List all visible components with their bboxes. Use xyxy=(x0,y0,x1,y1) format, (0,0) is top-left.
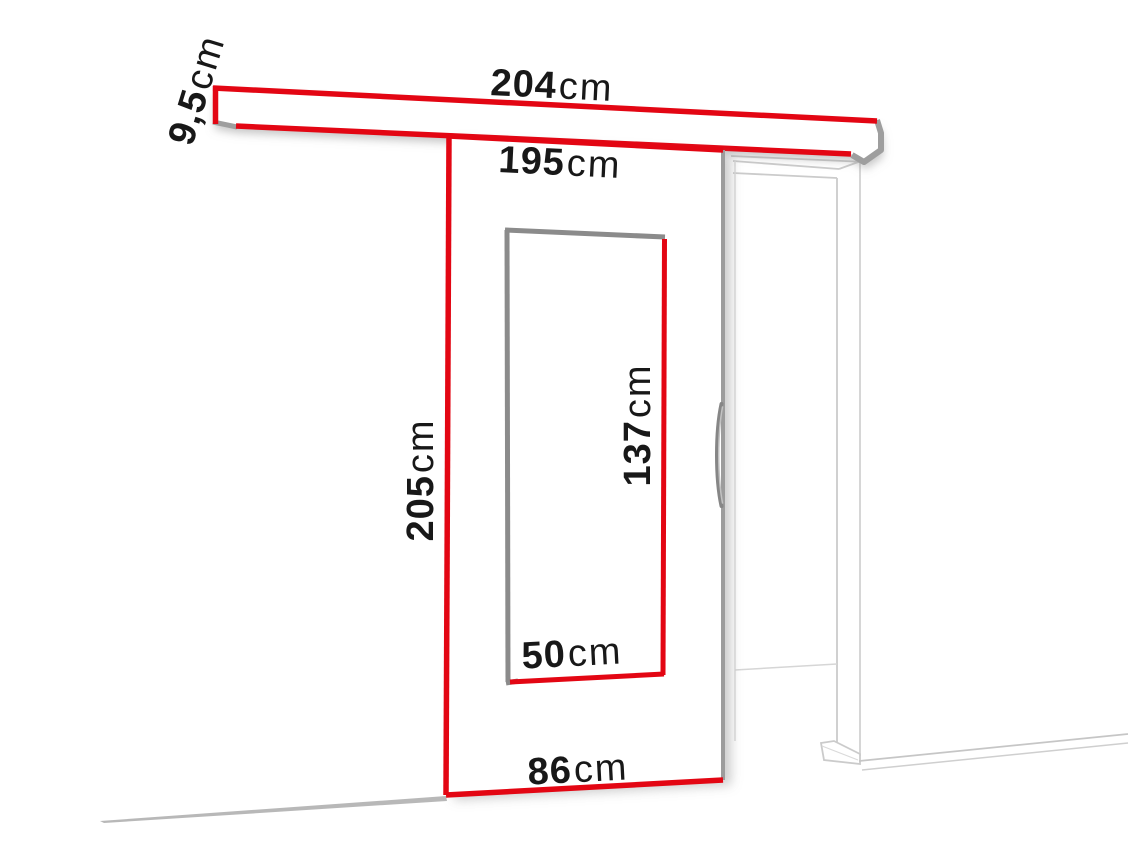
dimension-value: 195 xyxy=(498,139,566,184)
glass-width-label: 50cm xyxy=(521,632,624,675)
dimension-unit: cm xyxy=(617,363,659,418)
frame-plinth-block xyxy=(821,741,860,764)
dimension-unit: cm xyxy=(567,630,624,675)
frame-lintel-top-line xyxy=(731,156,866,162)
frame-threshold-line xyxy=(735,664,837,670)
dimension-value: 86 xyxy=(527,749,573,793)
dimension-unit: cm xyxy=(558,65,615,110)
glass-height-label: 137cm xyxy=(619,363,657,486)
floor-line-left xyxy=(100,796,447,823)
rail-length-label: 204cm xyxy=(490,64,615,108)
dimension-value: 205 xyxy=(400,475,442,541)
track-length-label: 195cm xyxy=(498,141,623,185)
dimension-diagram: 204cm 9,5cm 195cm 205cm 137cm 50cm 86cm xyxy=(0,0,1129,847)
glass-right-edge xyxy=(663,239,665,675)
dimension-unit: cm xyxy=(400,418,442,473)
door-width-label: 86cm xyxy=(527,748,630,791)
dimension-unit: cm xyxy=(566,142,623,187)
frame-lintel-inner-line xyxy=(733,161,839,169)
glass-left-edge xyxy=(507,230,508,682)
door-frame xyxy=(731,156,1128,770)
dimension-value: 137 xyxy=(617,420,659,486)
dimension-value: 204 xyxy=(490,62,558,107)
door-left-edge xyxy=(446,136,449,795)
door-height-label: 205cm xyxy=(402,418,440,541)
frame-corner-diagonal xyxy=(839,161,861,169)
frame-lintel-reveal-line xyxy=(733,173,837,178)
dimension-value: 50 xyxy=(521,633,567,677)
dimension-unit: cm xyxy=(573,746,630,791)
